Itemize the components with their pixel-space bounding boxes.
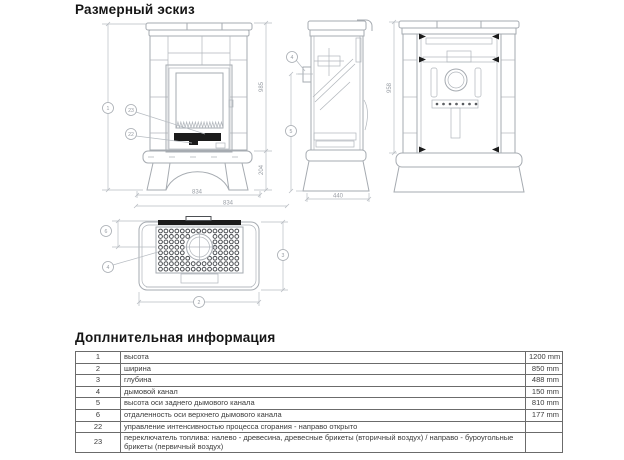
front-view [143, 23, 252, 190]
row-number: 5 [76, 398, 121, 410]
svg-text:4: 4 [291, 55, 294, 61]
side-top-flue-curl [357, 20, 372, 31]
svg-text:4: 4 [107, 265, 110, 271]
row-description: дымовой канал [121, 386, 526, 398]
table-row: 3 глубина 488 mm [76, 375, 563, 387]
rear-screw-bar [432, 100, 478, 108]
table-row: 5 высота оси заднего дымового канала 810… [76, 398, 563, 410]
top-view: 834 [134, 201, 289, 291]
top-rear-notch [186, 217, 211, 221]
table-row: 6 отдаленность оси верхнего дымового кан… [76, 409, 563, 421]
row-description: глубина [121, 375, 526, 387]
door-grille-sawtooth [177, 122, 223, 128]
dim-front-leg-height: 204 [259, 164, 265, 175]
table-row: 1 высота 1200 mm [76, 352, 563, 364]
rear-view-dimensions: 958 [387, 20, 400, 155]
dim-front-width: 834 [192, 190, 203, 196]
side-base [306, 150, 366, 161]
svg-text:5: 5 [290, 129, 293, 135]
row-description: управление интенсивностью процесса сгора… [121, 421, 526, 433]
side-door-handle [364, 100, 368, 130]
dimensional-sketch-drawing: 985 204 834 [0, 0, 624, 330]
svg-text:6: 6 [105, 229, 108, 235]
top-plate-outline [139, 222, 259, 290]
rear-skirt [394, 167, 524, 192]
table-row: 22 управление интенсивностью процесса сг… [76, 421, 563, 433]
row-number: 1 [76, 352, 121, 364]
row-description: высота [121, 352, 526, 364]
rear-right-column [501, 34, 515, 153]
callout-4-side: 4 [287, 52, 298, 63]
rear-center-bar [451, 108, 460, 138]
row-value [526, 433, 563, 453]
dim-rear-height: 958 [387, 82, 393, 93]
door-glass [176, 73, 223, 128]
callout-23: 23 [126, 105, 137, 116]
front-cornice [146, 23, 252, 30]
callout-5: 5 [286, 126, 297, 137]
rear-left-column [403, 34, 417, 153]
table-row: 4 дымовой канал 150 mm [76, 386, 563, 398]
row-description: ширина [121, 363, 526, 375]
perforation-holes [159, 229, 239, 271]
svg-text:3: 3 [282, 253, 285, 259]
door-latch [216, 143, 225, 148]
ash-lip-bar [174, 133, 221, 141]
rear-view [394, 21, 524, 192]
callout-2: 2 [194, 297, 205, 308]
side-skirt [303, 161, 369, 191]
row-number: 6 [76, 409, 121, 421]
row-value: 1200 mm [526, 352, 563, 364]
top-front-tab [181, 274, 218, 283]
table-row: 23 переключатель топлива: налево - древе… [76, 433, 563, 453]
callout-leaders [136, 60, 305, 143]
row-value: 488 mm [526, 375, 563, 387]
svg-text:22: 22 [128, 132, 134, 138]
row-value: 177 mm [526, 409, 563, 421]
callout-6: 6 [101, 226, 112, 237]
row-number: 22 [76, 421, 121, 433]
callout-3: 3 [278, 250, 289, 261]
side-grate [314, 133, 356, 140]
callout-4-top: 4 [103, 262, 114, 273]
front-leg-arch [166, 172, 229, 190]
front-left-leg [147, 163, 170, 190]
rear-right-slot [475, 68, 481, 97]
info-table-body: 1 высота 1200 mm 2 ширина 850 mm 3 глуби… [76, 352, 563, 453]
row-value: 850 mm [526, 363, 563, 375]
row-description: переключатель топлива: налево - древесин… [121, 433, 526, 453]
callout-1: 1 [103, 103, 114, 114]
row-number: 2 [76, 363, 121, 375]
side-ashpan [316, 141, 354, 147]
side-view [298, 20, 372, 191]
row-value: 150 mm [526, 386, 563, 398]
table-row: 2 ширина 850 mm [76, 363, 563, 375]
svg-text:23: 23 [128, 108, 134, 114]
svg-text:2: 2 [198, 300, 201, 306]
row-value [526, 421, 563, 433]
side-cornice [308, 21, 366, 30]
side-view-dimensions: 440 [289, 72, 371, 202]
row-description: высота оси заднего дымового канала [121, 398, 526, 410]
front-right-leg [225, 163, 248, 190]
rear-back-panel [417, 34, 501, 153]
svg-text:1: 1 [107, 106, 110, 112]
rear-base [396, 153, 522, 167]
row-value: 810 mm [526, 398, 563, 410]
rear-cornice [399, 21, 519, 28]
info-title: Доплнительная информация [75, 330, 276, 345]
dim-top-width: 834 [223, 201, 234, 207]
info-table: 1 высота 1200 mm 2 ширина 850 mm 3 глуби… [75, 351, 563, 453]
row-number: 4 [76, 386, 121, 398]
callout-22: 22 [126, 129, 137, 140]
row-description: отдаленность оси верхнего дымового канал… [121, 409, 526, 421]
rear-smoke-channel [303, 67, 311, 82]
dim-side-depth: 440 [333, 194, 344, 200]
dim-front-height: 985 [259, 81, 265, 92]
dimensional-sketch-page: Размерный эскиз [0, 0, 624, 460]
rear-left-slot [431, 68, 437, 97]
row-number: 3 [76, 375, 121, 387]
row-number: 23 [76, 433, 121, 453]
